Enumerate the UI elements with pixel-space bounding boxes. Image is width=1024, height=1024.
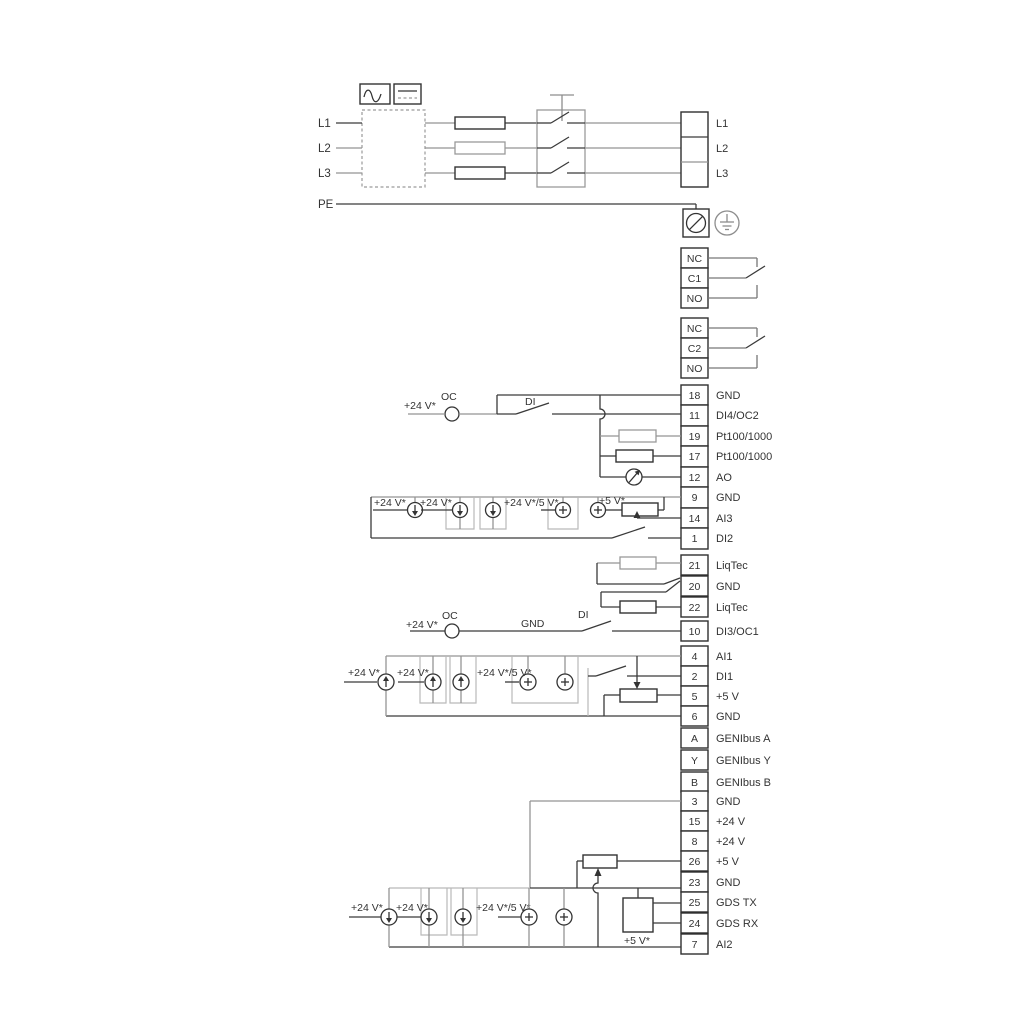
ai3-v24-label-2: +24 V* (420, 497, 452, 509)
relay1-contact-icon (708, 258, 765, 298)
t18-num: 18 (689, 390, 701, 402)
relay2-nc: NC (687, 323, 703, 335)
t15-num: 15 (689, 816, 701, 828)
tB-label: GENIbus B (716, 777, 771, 789)
dc-symbol-icon (394, 84, 421, 104)
relay-2: NC C2 NO (681, 318, 765, 378)
output-label-l3: L3 (716, 168, 728, 180)
t8-num: 8 (692, 836, 698, 848)
voltage-source-icon (557, 674, 573, 690)
relay2-c2: C2 (688, 343, 702, 355)
earth-symbol-icon (715, 211, 739, 235)
t23-label: GND (716, 877, 741, 889)
power-section: L1 L2 L3 PE (318, 84, 739, 237)
current-sink-icon (453, 503, 468, 518)
t3-num: 3 (692, 796, 698, 808)
option-bracket (512, 656, 578, 703)
ai3-v24or5-label: +24 V*/5 V* (504, 497, 559, 509)
t2-label: DI1 (716, 671, 733, 683)
liqtec-sensor-icon-2 (620, 601, 656, 613)
tY-label: GENIbus Y (716, 755, 771, 767)
input-label-pe: PE (318, 199, 334, 211)
pt100-sensor-icon-2 (616, 450, 653, 462)
t12-label: AO (716, 472, 732, 484)
mains-wires (336, 123, 681, 173)
t4-num: 4 (692, 651, 698, 663)
wiper-stem (593, 874, 598, 947)
main-switch-icon (537, 95, 585, 187)
wiper-arrow-icon (634, 682, 641, 689)
potentiometer-icon (583, 855, 617, 868)
output-label-l2: L2 (716, 143, 728, 155)
di4-supply-label: +24 V* (404, 400, 436, 412)
liqtec-sensor-icon (620, 557, 656, 569)
t10-num: 10 (689, 626, 701, 638)
io-group-2: 10 4 2 5 6 A Y B DI3/OC1 AI1 DI1 +5 V GN… (681, 621, 771, 792)
fuse-icons (455, 117, 505, 179)
t18-label: GND (716, 390, 741, 402)
tB-num: B (691, 777, 698, 789)
t19-num: 19 (689, 431, 701, 443)
relay-1: NC C1 NO (681, 248, 765, 308)
ai1-wiring: +24 V* +24 V* +24 V*/5 V* (344, 656, 681, 716)
relay1-no: NO (687, 293, 703, 305)
liqtec-group: 21 20 22 LiqTec GND LiqTec (597, 555, 748, 617)
t7-num: 7 (692, 939, 698, 951)
t5-num: 5 (692, 691, 698, 703)
tA-label: GENIbus A (716, 733, 771, 745)
current-sink-icon (486, 503, 501, 518)
voltage-source-icon (556, 503, 571, 518)
current-sink-icon (455, 909, 471, 925)
tY-num: Y (691, 755, 698, 767)
input-label-l2: L2 (318, 143, 331, 155)
ai2-gds-wiring: +24 V* +24 V* +24 V*/5 V* (349, 801, 681, 947)
current-source-icon (425, 674, 441, 690)
potentiometer-icon (622, 503, 658, 516)
liqtec-sensor-wiring (597, 557, 681, 613)
t12-num: 12 (689, 472, 701, 484)
io-group-1: 18 11 19 17 12 9 14 1 GND DI4/OC2 Pt100/… (681, 385, 772, 549)
wiring-diagram: L1 L2 L3 PE (0, 0, 1024, 1024)
current-sink-icon (421, 909, 437, 925)
t9-label: GND (716, 492, 741, 504)
t26-label: +5 V (716, 856, 740, 868)
di3-switch-icon (582, 621, 611, 631)
oc-node-icon (445, 624, 459, 638)
t11-num: 11 (689, 410, 700, 422)
t14-num: 14 (689, 513, 701, 525)
gds-v5-label: +5 V* (624, 935, 650, 947)
emc-filter-box (362, 110, 425, 187)
di2-switch-icon (612, 527, 645, 538)
oc-node-icon (445, 407, 459, 421)
tA-num: A (691, 733, 698, 745)
relay2-contact-icon (708, 328, 765, 368)
gds-sensor-icon (623, 888, 681, 932)
t19-label: Pt100/1000 (716, 431, 772, 443)
di3-di-label: DI (578, 609, 589, 621)
t5-label: +5 V (716, 691, 740, 703)
di4-oc-label: OC (441, 391, 457, 403)
t22-label: LiqTec (716, 602, 748, 614)
t4-label: AI1 (716, 651, 733, 663)
relay2-no: NO (687, 363, 703, 375)
t9-num: 9 (692, 492, 698, 504)
ai3-v24-label-1: +24 V* (374, 497, 406, 509)
mains-terminal-block: L1 L2 L3 (681, 112, 728, 187)
output-label-l1: L1 (716, 118, 728, 130)
ai1-v24-label-2: +24 V* (397, 667, 429, 679)
current-source-icon (453, 674, 469, 690)
pe-screw-terminal-icon (683, 209, 709, 237)
t24-label: GDS RX (716, 918, 759, 930)
t11-label: DI4/OC2 (716, 410, 759, 422)
t1-num: 1 (692, 533, 698, 545)
t24-num: 24 (689, 918, 701, 930)
analog-output-meter-icon (626, 469, 642, 485)
ai2-v24-label-1: +24 V* (351, 902, 383, 914)
t6-num: 6 (692, 711, 698, 723)
di3-supply-label: +24 V* (406, 619, 438, 631)
current-source-icon (378, 674, 394, 690)
t23-num: 23 (689, 877, 701, 889)
wiper-arrow-icon (595, 868, 602, 876)
t21-label: LiqTec (716, 560, 748, 572)
t7-label: AI2 (716, 939, 733, 951)
voltage-source-icon (556, 909, 572, 925)
diagram-canvas: L1 L2 L3 PE (0, 0, 1024, 1024)
di4-di-label: DI (525, 396, 536, 408)
t15-label: +24 V (716, 816, 746, 828)
relay1-nc: NC (687, 253, 703, 265)
t17-num: 17 (689, 451, 701, 463)
t17-label: Pt100/1000 (716, 451, 772, 463)
current-sink-icon (381, 909, 397, 925)
ai1-v24or5-label: +24 V*/5 V* (477, 667, 532, 679)
ai1-v24-label-1: +24 V* (348, 667, 380, 679)
t8-label: +24 V (716, 836, 746, 848)
potentiometer-icon (620, 689, 657, 702)
input-label-l3: L3 (318, 168, 331, 180)
t25-label: GDS TX (716, 897, 757, 909)
t1-label: DI2 (716, 533, 733, 545)
voltage-source-icon (591, 503, 606, 518)
di3-gnd-label: GND (521, 618, 545, 630)
relay1-c1: C1 (688, 273, 702, 285)
io-group-3: 3 15 8 26 23 25 24 7 GND +24 V +24 V +5 … (681, 791, 759, 954)
pt100-sensor-icon (619, 430, 656, 442)
t20-label: GND (716, 581, 741, 593)
t20-num: 20 (689, 581, 701, 593)
t2-num: 2 (692, 671, 698, 683)
t25-num: 25 (689, 897, 701, 909)
current-sink-icon (408, 503, 423, 518)
t26-num: 26 (689, 856, 701, 868)
t14-label: AI3 (716, 513, 733, 525)
t22-num: 22 (689, 602, 701, 614)
io-group-1-wiring: +24 V* OC DI (404, 391, 681, 485)
option-bracket (451, 888, 477, 935)
t21-num: 21 (689, 560, 701, 572)
ai3-di2-wiring: +24 V* +24 V* +24 V*/5 V* +5 V* (371, 495, 681, 538)
pe-wiring (336, 204, 696, 209)
di3-oc-label: OC (442, 610, 458, 622)
t3-label: GND (716, 796, 741, 808)
t10-label: DI3/OC1 (716, 626, 759, 638)
input-label-l1: L1 (318, 118, 331, 130)
t6-label: GND (716, 711, 741, 723)
ac-symbol-icon (360, 84, 390, 104)
di1-switch-icon (596, 666, 626, 676)
